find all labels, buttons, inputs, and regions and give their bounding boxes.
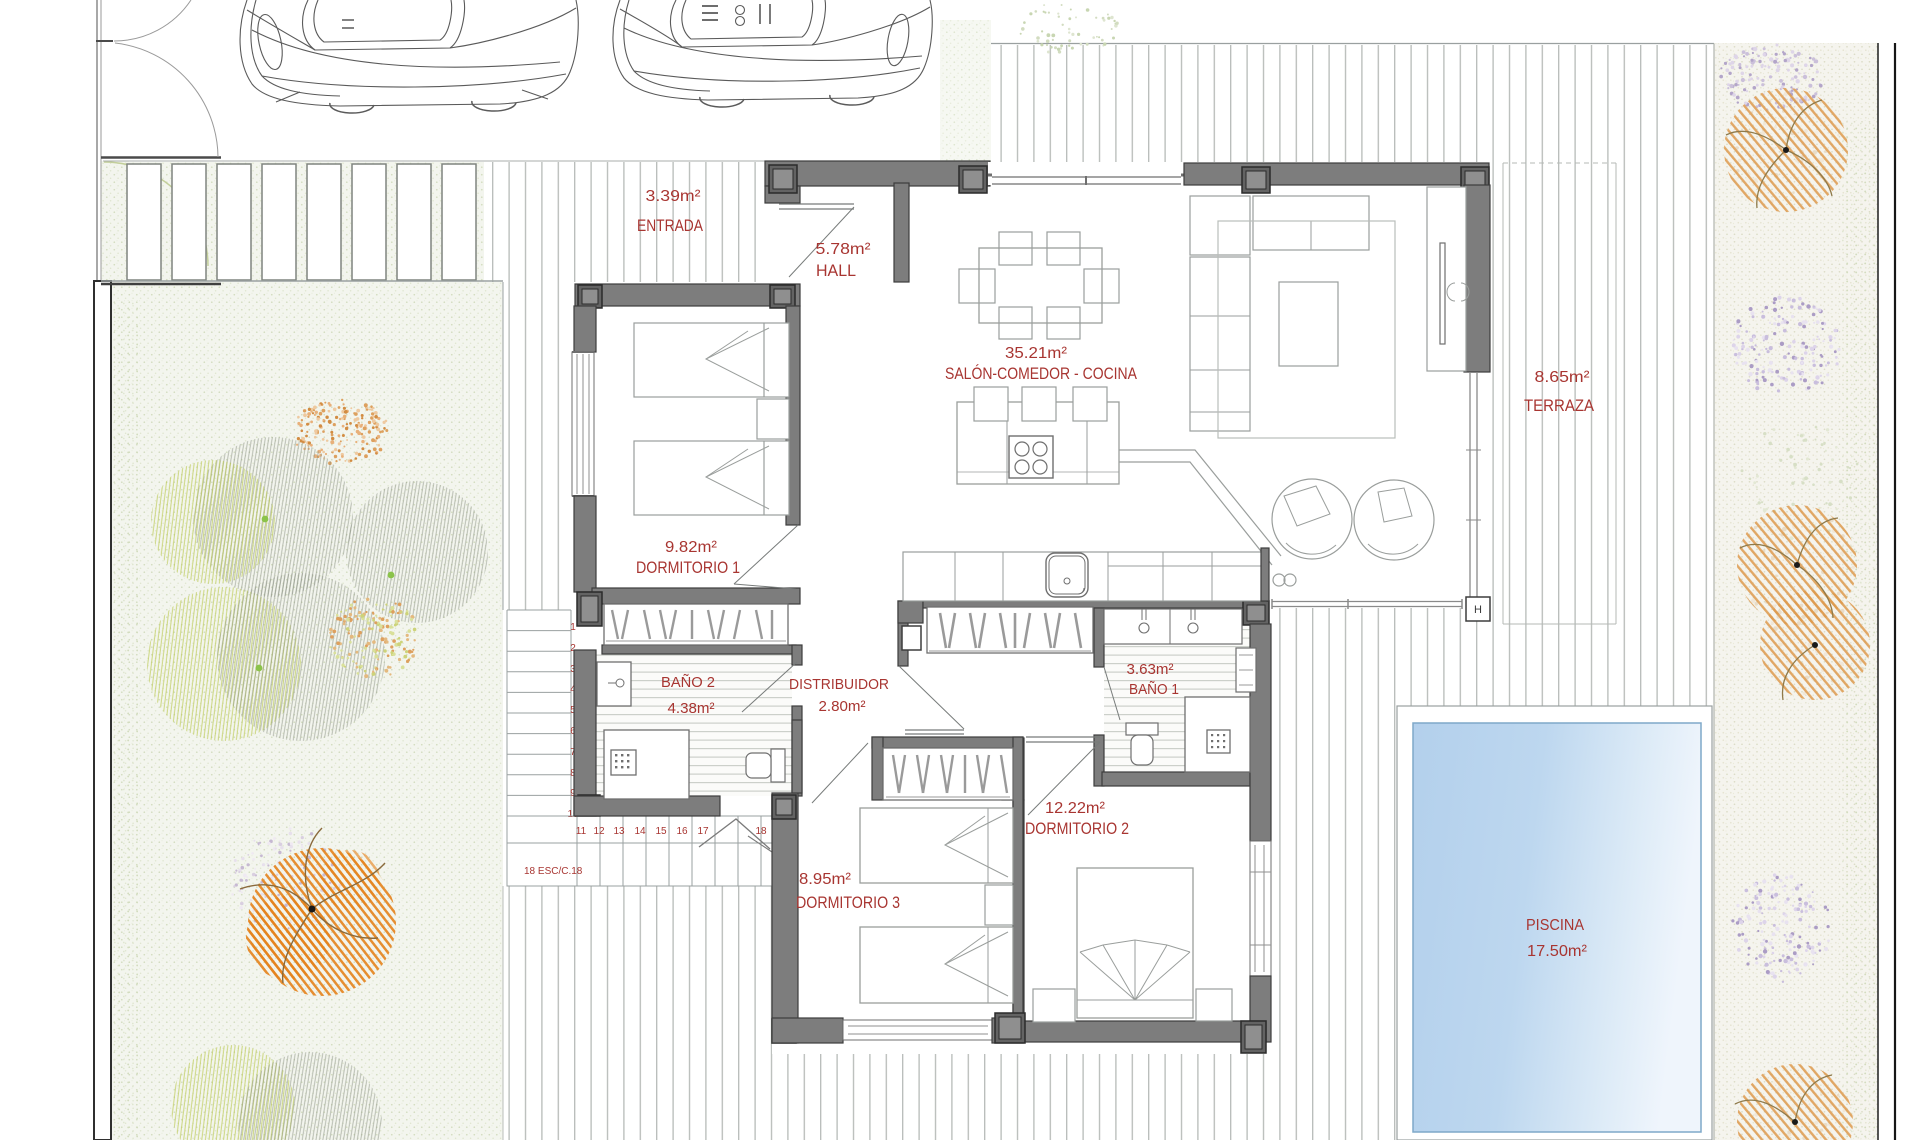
svg-text:BAÑO 1: BAÑO 1: [1129, 681, 1179, 698]
svg-text:9.82m²: 9.82m²: [665, 539, 718, 556]
svg-text:H: H: [1474, 604, 1482, 616]
svg-text:DORMITORIO 1: DORMITORIO 1: [636, 558, 740, 577]
svg-text:DISTRIBUIDOR: DISTRIBUIDOR: [789, 676, 889, 693]
svg-text:8.65m²: 8.65m²: [1535, 369, 1591, 386]
svg-text:5.78m²: 5.78m²: [816, 241, 872, 258]
svg-text:PISCINA: PISCINA: [1526, 917, 1584, 934]
svg-text:12.22m²: 12.22m²: [1045, 800, 1106, 817]
svg-text:13: 13: [613, 826, 625, 837]
svg-text:18: 18: [755, 826, 767, 837]
svg-text:18 ESC/C.18: 18 ESC/C.18: [524, 866, 583, 877]
svg-text:4.38m²: 4.38m²: [668, 700, 715, 717]
svg-text:8.95m²: 8.95m²: [799, 871, 852, 888]
svg-text:35.21m²: 35.21m²: [1005, 345, 1068, 362]
svg-text:ENTRADA: ENTRADA: [637, 216, 704, 235]
svg-text:BAÑO 2: BAÑO 2: [661, 674, 715, 691]
svg-text:3.39m²: 3.39m²: [646, 188, 702, 205]
svg-text:3.63m²: 3.63m²: [1127, 661, 1174, 678]
svg-text:DORMITORIO 2: DORMITORIO 2: [1025, 819, 1129, 838]
svg-text:11: 11: [576, 826, 587, 837]
svg-text:2.80m²: 2.80m²: [819, 698, 866, 715]
svg-text:TERRAZA: TERRAZA: [1524, 396, 1595, 415]
svg-text:15: 15: [655, 826, 667, 837]
svg-text:17.50m²: 17.50m²: [1527, 943, 1588, 960]
svg-text:12: 12: [593, 826, 605, 837]
svg-text:SALÓN-COMEDOR - COCINA: SALÓN-COMEDOR - COCINA: [945, 364, 1138, 383]
svg-text:1: 1: [570, 622, 576, 633]
svg-text:14: 14: [634, 826, 646, 837]
svg-text:16: 16: [676, 826, 688, 837]
svg-text:17: 17: [697, 826, 709, 837]
svg-text:DORMITORIO 3: DORMITORIO 3: [796, 893, 900, 912]
svg-text:HALL: HALL: [816, 261, 856, 280]
